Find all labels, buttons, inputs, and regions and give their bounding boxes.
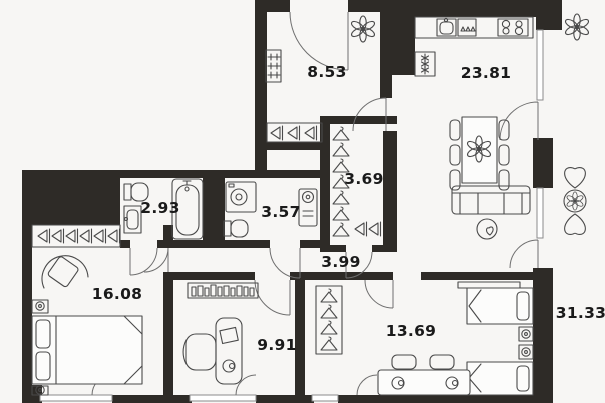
wall-segment: [380, 12, 415, 75]
window-study: [190, 395, 256, 401]
wall-segment: [112, 395, 192, 403]
stove-icon: [498, 19, 528, 36]
room-wardrobe: 3.69: [333, 127, 384, 236]
balcony: [564, 14, 590, 234]
wall-segment: [255, 150, 267, 172]
wall-segment: [320, 116, 397, 124]
wall-segment: [320, 245, 346, 252]
wall-shelf: [458, 282, 520, 288]
bedroom-closet-rail-icon: [32, 225, 120, 247]
desk-icon: [216, 318, 242, 384]
room-kitchen-living: 23.81: [415, 17, 533, 239]
room-area-wardrobe: 3.69: [344, 170, 383, 188]
pouf-icon: [477, 219, 497, 239]
study-door-arc: [255, 280, 290, 315]
room-area-study: 9.91: [257, 336, 296, 354]
room-bedroom: 16.08: [32, 225, 142, 395]
plant-icon: [564, 14, 590, 40]
floor-plan-canvas: 8.53: [0, 0, 605, 403]
floor-plan: 8.53: [0, 0, 605, 403]
balcony-door-upper-arc: [500, 102, 538, 140]
hall-living-door-arc: [353, 98, 386, 131]
wall-segment: [305, 272, 393, 280]
washing-machine-icon: [226, 182, 256, 212]
sofa-icon: [452, 186, 530, 214]
wall-segment: [22, 170, 32, 403]
window-bedroom: [40, 395, 112, 401]
kids-room-door-arc: [365, 280, 393, 308]
balcony-table-icon: [564, 190, 586, 212]
wall-segment: [163, 272, 173, 403]
study-window-sash-arc: [236, 375, 256, 395]
dish-rack-icon: [458, 19, 476, 36]
window-balcony-glazing: [537, 188, 543, 238]
room-area-shower: 3.57: [261, 203, 300, 221]
room-area-bathroom: 2.93: [140, 199, 179, 217]
room-shower: 3.57: [224, 182, 317, 237]
wall-segment: [533, 138, 553, 188]
kitchen-counter: [415, 17, 533, 38]
bookshelf-icon: [188, 283, 258, 298]
hall-closet-rail-icon: [267, 123, 322, 142]
nightstand-icon: [519, 327, 533, 341]
wall-segment: [372, 245, 397, 252]
wardrobe-rail-icon: [355, 222, 381, 236]
fridge-icon: [415, 52, 435, 76]
room-area-total: 31.33: [556, 304, 605, 322]
water-heater-icon: [299, 189, 317, 226]
wall-segment: [380, 75, 392, 98]
kids-desk-icon: [378, 355, 470, 395]
balcony-chair-icon: [565, 168, 586, 188]
kids-bed-icon: [467, 362, 533, 395]
desk-chair-icon: [183, 334, 216, 370]
wall-segment: [173, 272, 255, 280]
armchair-icon: [42, 256, 88, 288]
room-area-hall: 8.53: [307, 63, 346, 81]
kitchen-sink-icon: [437, 18, 456, 36]
entrance-door-arc: [290, 12, 348, 70]
room-corridor: 3.99: [321, 253, 360, 271]
kids-bed-icon: [467, 288, 533, 324]
wall-segment: [338, 395, 553, 403]
window-kids-room: [312, 395, 338, 401]
wall-segment: [348, 0, 382, 12]
kids-wardrobe-hangers-icon: [316, 286, 342, 354]
double-bed-icon: [32, 316, 142, 384]
wall-segment: [255, 0, 267, 150]
wall-segment: [383, 131, 397, 252]
room-kids: 13.69: [316, 282, 533, 395]
wall-segment: [300, 240, 320, 248]
window-kitchen-right: [537, 30, 543, 100]
toilet-icon: [224, 220, 248, 237]
room-area-bedroom: 16.08: [92, 285, 143, 303]
nightstand-icon: [32, 300, 48, 313]
bathroom-door-arc: [130, 248, 157, 275]
room-area-kids: 13.69: [386, 322, 437, 340]
wall-segment: [256, 395, 314, 403]
sink-icon: [124, 206, 141, 233]
room-study: 9.91: [183, 283, 297, 384]
radiator-icon: [266, 50, 281, 82]
wall-segment: [22, 170, 120, 225]
nightstand-icon: [519, 345, 533, 359]
wall-segment: [120, 240, 130, 248]
kids-window-sash-arc: [357, 375, 377, 395]
balcony-door-lower-arc: [510, 240, 538, 268]
plant-icon: [350, 16, 376, 42]
wall-segment: [203, 178, 225, 248]
wall-segment: [533, 268, 553, 403]
wall-segment: [255, 0, 290, 12]
wall-segment: [536, 0, 562, 30]
balcony-chair-icon: [565, 214, 586, 234]
dining-table-icon: [462, 117, 497, 183]
wall-segment: [157, 240, 270, 248]
room-area-corridor: 3.99: [321, 253, 360, 271]
room-area-kitchen-living: 23.81: [461, 64, 512, 82]
wall-segment: [255, 142, 330, 150]
